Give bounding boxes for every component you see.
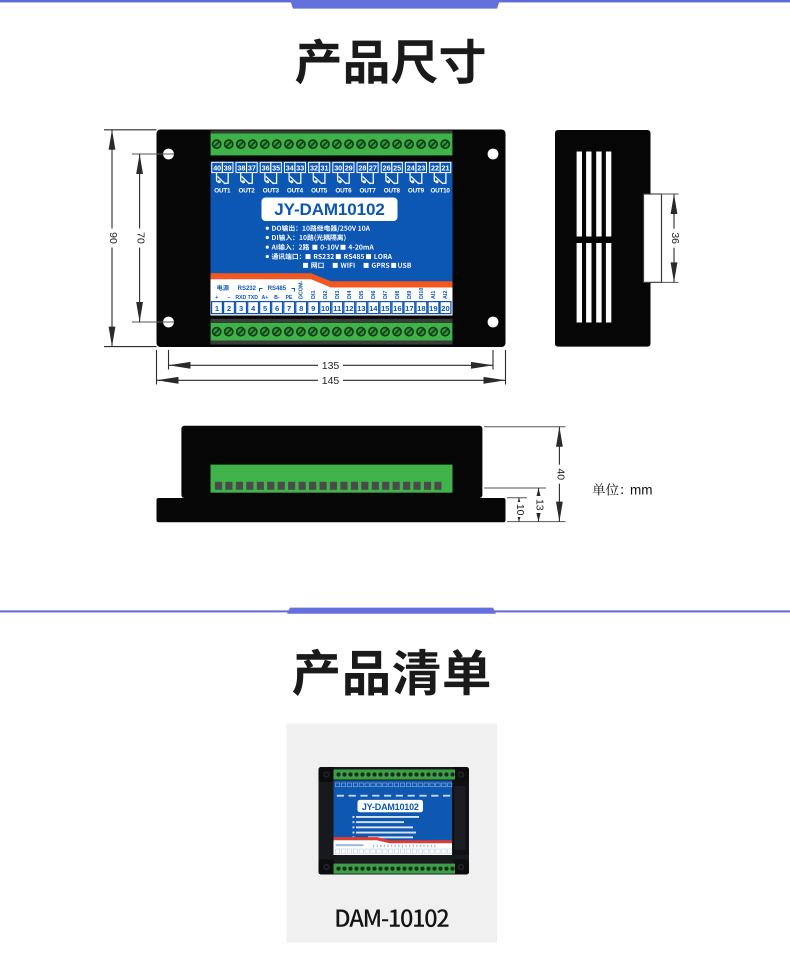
svg-text:OUT4: OUT4 [287, 187, 304, 194]
svg-text:A+: A+ [262, 295, 269, 301]
svg-text:DCOM-: DCOM- [299, 281, 305, 299]
svg-text:DI3: DI3 [335, 291, 341, 299]
svg-text:OUT10: OUT10 [430, 187, 450, 194]
svg-text:TXD: TXD [248, 295, 259, 301]
svg-text:AI1: AI1 [431, 291, 437, 299]
svg-text:17: 17 [405, 304, 413, 313]
svg-text:B-: B- [274, 295, 280, 301]
svg-text:OUT7: OUT7 [360, 187, 377, 194]
svg-text:DI4: DI4 [347, 291, 353, 299]
svg-text:OUT8: OUT8 [384, 187, 401, 194]
svg-text:11: 11 [333, 304, 342, 313]
svg-text:30: 30 [334, 164, 342, 173]
svg-text:28: 28 [358, 164, 366, 173]
svg-text:9: 9 [311, 304, 315, 313]
svg-text:70: 70 [135, 232, 147, 244]
svg-text:7: 7 [287, 304, 291, 313]
svg-text:DI10: DI10 [419, 288, 425, 299]
svg-text:15: 15 [381, 304, 390, 313]
svg-text:DI9: DI9 [407, 291, 413, 299]
svg-text:DI1: DI1 [311, 291, 317, 299]
svg-text:29: 29 [345, 164, 353, 173]
svg-text:RS232: RS232 [238, 286, 257, 292]
svg-text:10: 10 [514, 504, 526, 516]
svg-text:RXD: RXD [235, 295, 246, 301]
svg-text:−: − [227, 295, 230, 301]
svg-text:39: 39 [224, 164, 232, 173]
svg-text:2: 2 [227, 304, 231, 313]
svg-text:+: + [215, 295, 218, 301]
svg-text:OUT1: OUT1 [214, 187, 231, 194]
svg-text:OUT3: OUT3 [263, 187, 280, 194]
svg-text:27: 27 [369, 164, 377, 173]
svg-text:12: 12 [345, 304, 353, 313]
svg-text:19: 19 [429, 304, 437, 313]
svg-text:36: 36 [669, 232, 681, 244]
svg-text:90: 90 [107, 232, 119, 244]
svg-text:31: 31 [321, 164, 329, 173]
svg-text:22: 22 [431, 164, 439, 173]
svg-text:OUT2: OUT2 [239, 187, 256, 194]
svg-text:JY-DAM10102: JY-DAM10102 [274, 200, 384, 219]
svg-text:8: 8 [299, 304, 303, 313]
svg-text:23: 23 [417, 164, 425, 173]
svg-text:DI6: DI6 [371, 291, 377, 299]
svg-text:AI2: AI2 [443, 291, 449, 299]
svg-text:145: 145 [322, 375, 340, 387]
svg-text:14: 14 [369, 304, 378, 313]
svg-text:10: 10 [321, 304, 329, 313]
svg-text:37: 37 [248, 164, 256, 173]
svg-text:135: 135 [322, 360, 340, 372]
svg-text:PE: PE [285, 295, 292, 301]
svg-text:RS485: RS485 [268, 286, 287, 292]
svg-text:13: 13 [357, 304, 365, 313]
svg-text:40: 40 [213, 164, 221, 173]
svg-text:OUT6: OUT6 [335, 187, 352, 194]
svg-text:JY-DAM10102: JY-DAM10102 [362, 802, 419, 812]
svg-text:32: 32 [310, 164, 318, 173]
svg-text:6: 6 [275, 304, 279, 313]
svg-text:OUT5: OUT5 [311, 187, 328, 194]
svg-text:35: 35 [272, 164, 280, 173]
svg-text:36: 36 [262, 164, 270, 173]
svg-text:25: 25 [393, 164, 401, 173]
svg-text:DI8: DI8 [395, 291, 401, 299]
svg-text:DI7: DI7 [383, 291, 389, 299]
svg-text:3: 3 [239, 304, 243, 313]
svg-text:DI5: DI5 [359, 291, 365, 299]
svg-text:24: 24 [407, 164, 415, 173]
svg-text:34: 34 [286, 164, 294, 173]
svg-text:18: 18 [417, 304, 425, 313]
svg-text:OUT9: OUT9 [408, 187, 425, 194]
svg-text:16: 16 [393, 304, 401, 313]
svg-text:38: 38 [237, 164, 245, 173]
svg-text:mm: mm [630, 483, 653, 498]
svg-text:13: 13 [533, 499, 545, 511]
svg-text:DI2: DI2 [323, 291, 329, 299]
svg-text:33: 33 [296, 164, 304, 173]
svg-text:21: 21 [442, 164, 450, 173]
svg-text:26: 26 [383, 164, 391, 173]
svg-text:20: 20 [441, 304, 449, 313]
svg-text:40: 40 [554, 468, 566, 480]
